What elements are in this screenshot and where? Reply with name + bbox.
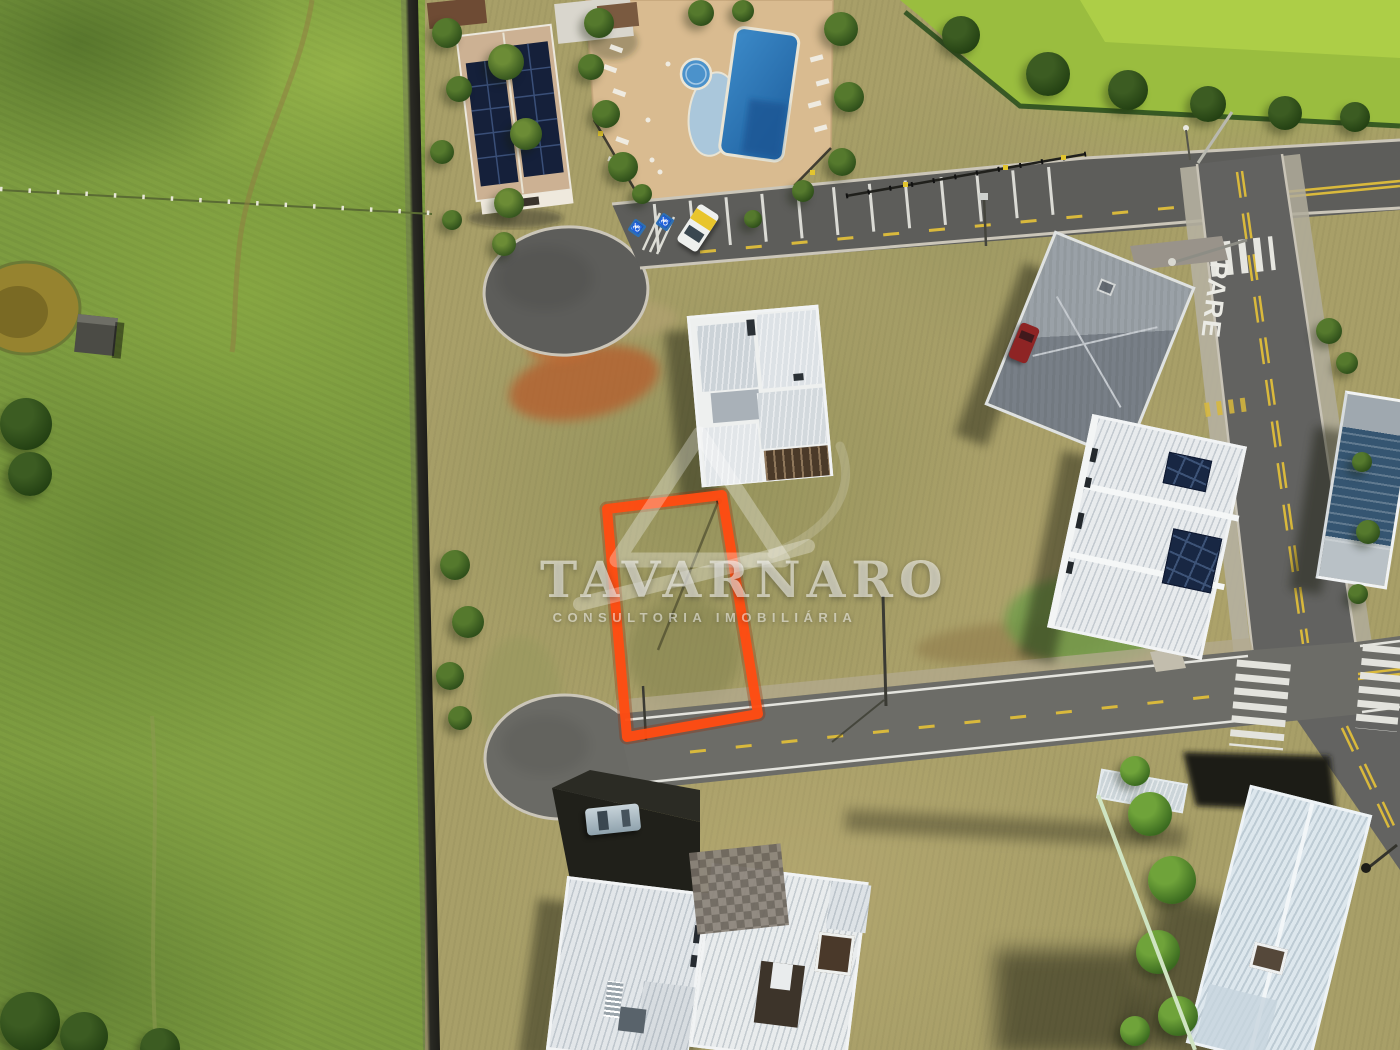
light-green-fence [1098, 795, 1195, 1050]
aerial-photo: PARE [0, 0, 1400, 1050]
utility-poles [643, 112, 1397, 873]
overlay-graphics [0, 0, 1400, 1050]
lot-outline [607, 495, 758, 737]
